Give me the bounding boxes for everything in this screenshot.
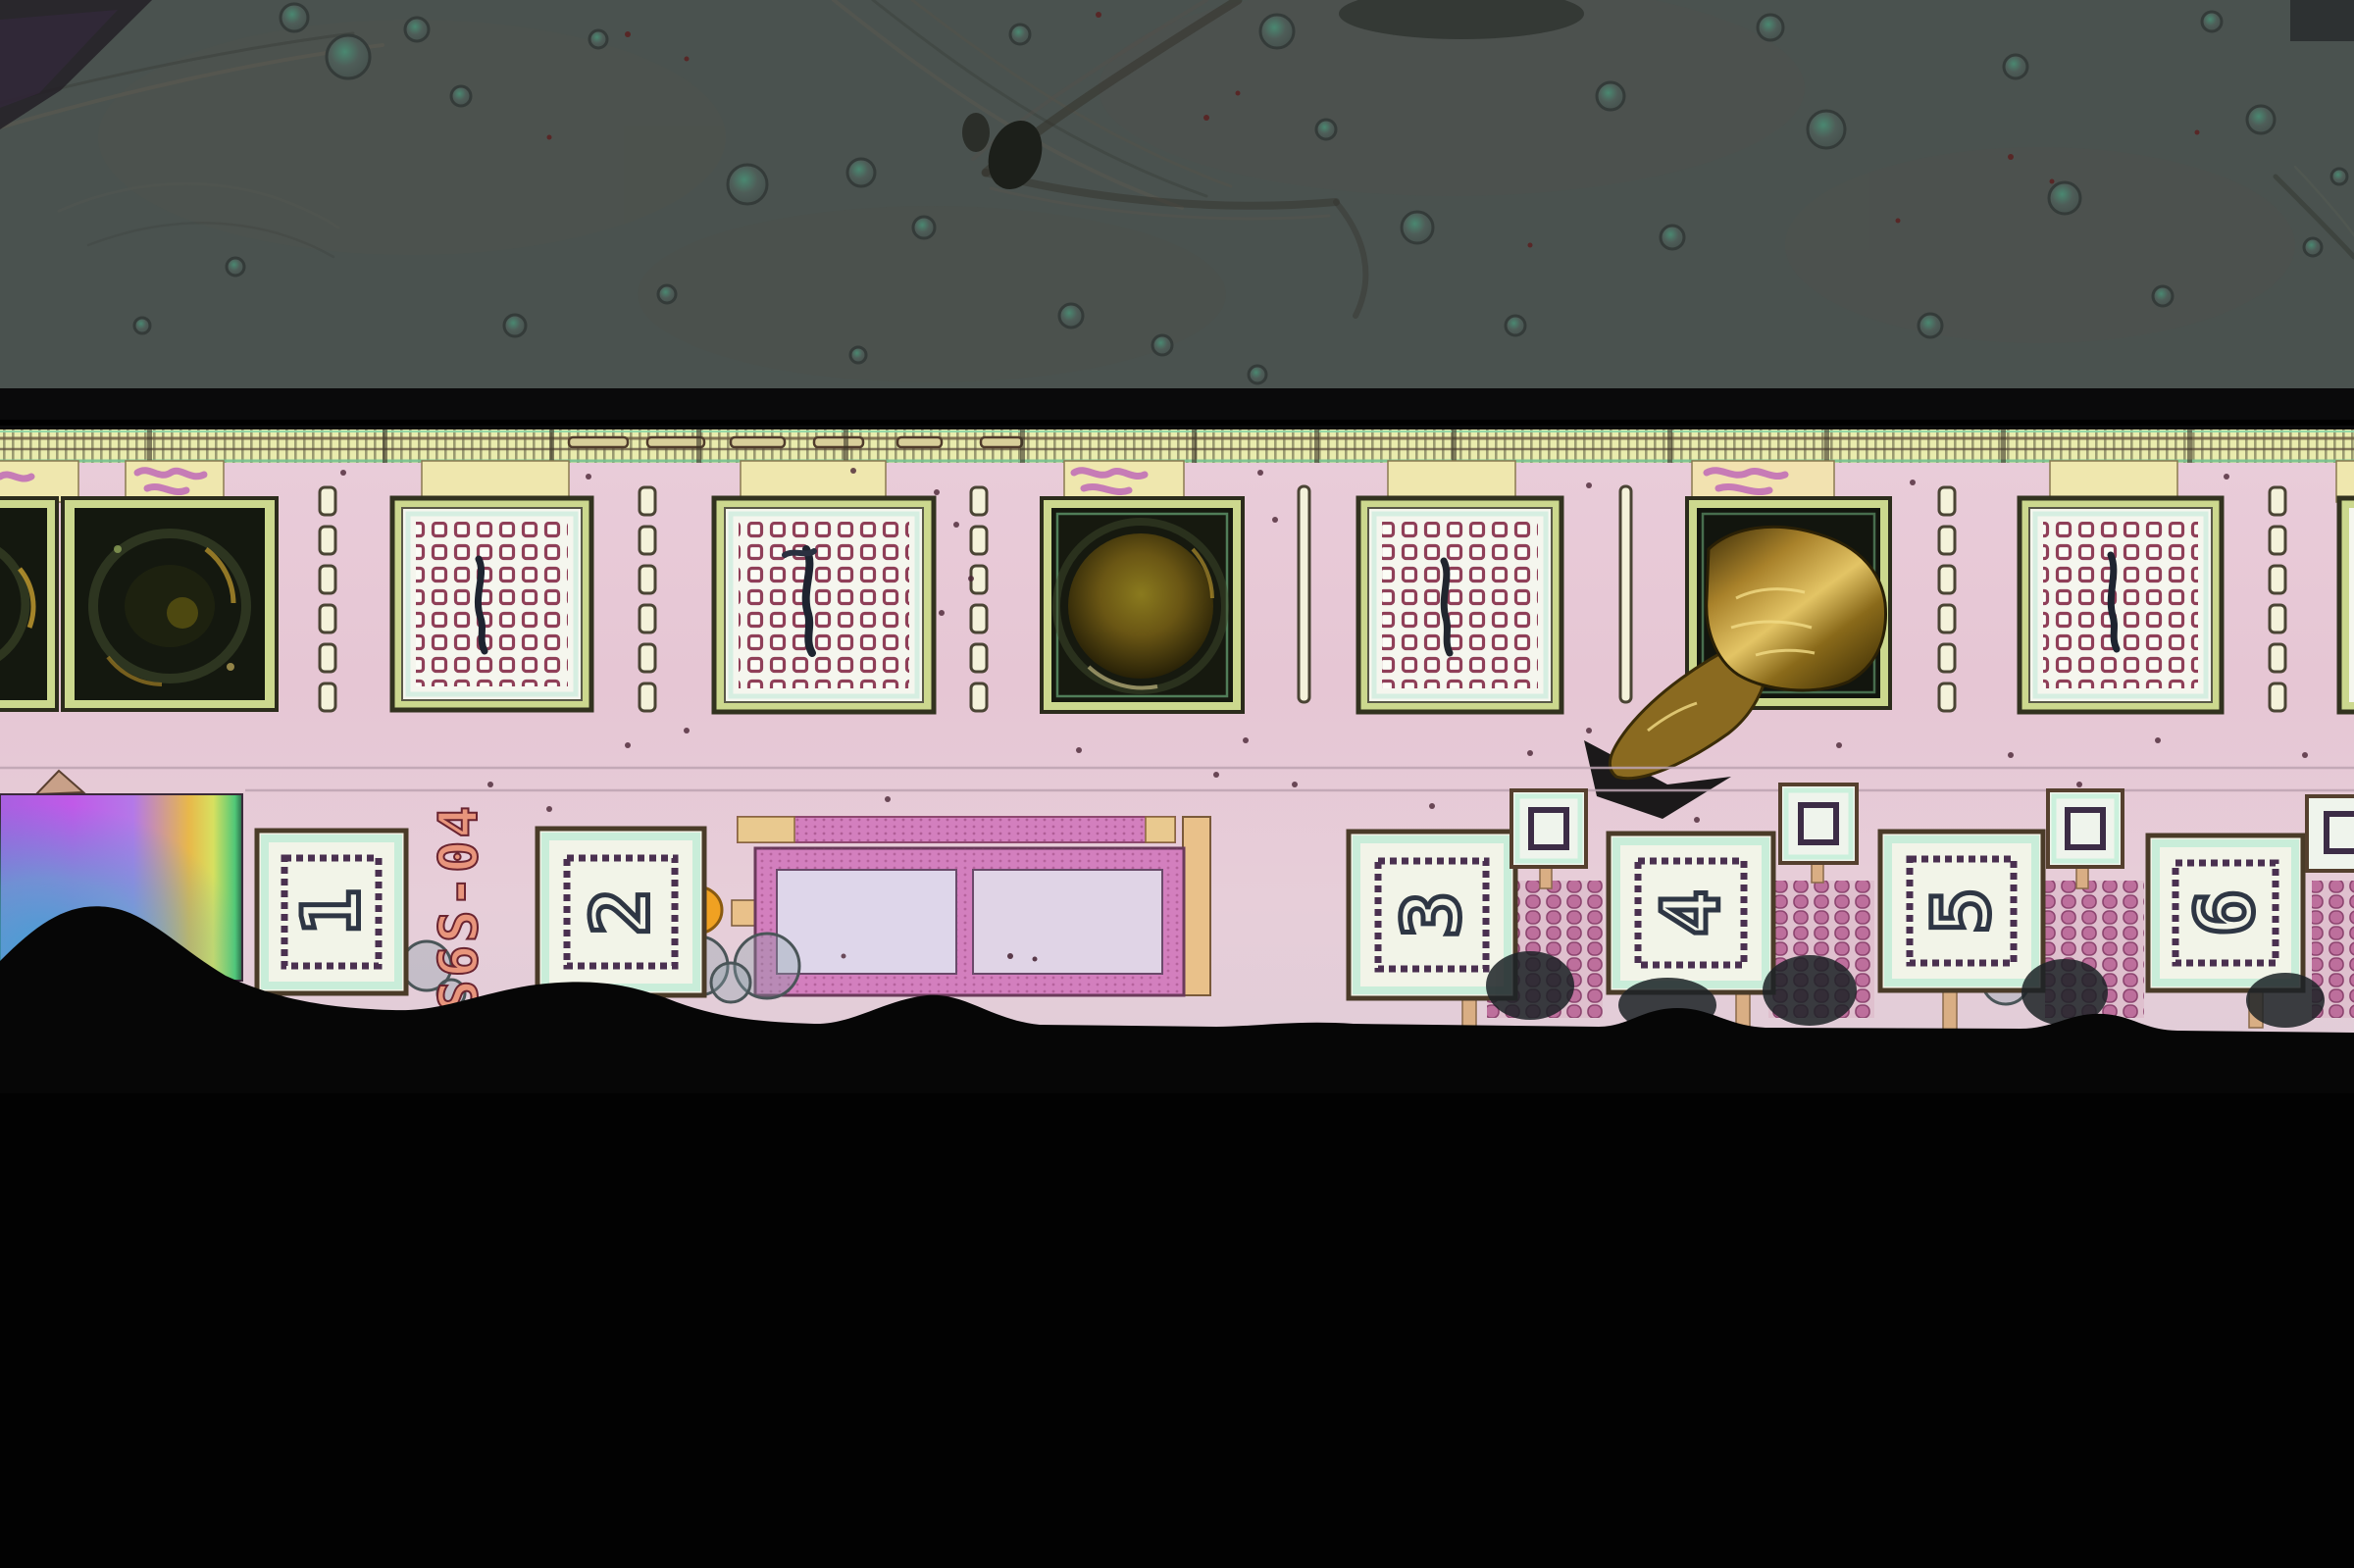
bubble (281, 4, 308, 31)
bond-pad-4-via-grid (714, 498, 934, 712)
frame-top-bar-cap-right (1146, 817, 1175, 842)
bubble (1402, 212, 1433, 243)
bubble (2153, 286, 2173, 306)
bubble (728, 165, 767, 204)
probe-pad-digit: 3 (1387, 891, 1478, 938)
bubble (913, 217, 935, 238)
probe-pad-digit: 4 (1646, 889, 1737, 936)
bubble (1597, 82, 1624, 110)
bond-pad-5-bonded-ball (1042, 498, 1243, 712)
bond-ball-residue (1068, 533, 1213, 679)
bubble (1919, 314, 1942, 337)
bubble (1661, 226, 1684, 249)
micrograph-of-ic-die: S6S-04 1 2 3 4 (0, 0, 2354, 1568)
bubble (1506, 316, 1525, 335)
seal-ring-strip (0, 430, 2354, 463)
bubble (2049, 182, 2080, 214)
bond-pad-6-via-grid (1358, 498, 1561, 712)
bubble (451, 86, 471, 106)
bubble (1152, 335, 1172, 355)
bond-pad-3-via-grid (392, 498, 591, 710)
interface-line (0, 420, 2354, 426)
bubble (227, 258, 244, 276)
bond-pad-2-bonded-dark (63, 498, 277, 710)
probe-pad-6: 6 (2148, 835, 2303, 990)
bubble (711, 963, 750, 1002)
bubble (134, 318, 150, 333)
probe-pad-4: 4 (1609, 834, 1773, 992)
marker-square-2 (1780, 784, 1857, 863)
probe-pad-5: 5 (1880, 832, 2043, 990)
bond-pad-8-via-grid (2020, 498, 2222, 712)
frame-right-rail (1183, 817, 1210, 995)
bubble (1316, 120, 1336, 139)
marker-square-3 (2048, 790, 2123, 867)
pad-tab (126, 461, 224, 502)
bond-pad-1-bonded-dark (0, 498, 57, 710)
marker-square-1 (1511, 790, 1586, 867)
probe-pad-digit: 1 (286, 888, 378, 936)
bubble (2304, 238, 2322, 256)
bubble (2202, 12, 2222, 31)
bottom-black-fill (0, 1093, 2354, 1568)
bubble (658, 285, 676, 303)
bubble (1260, 15, 1294, 48)
bubble (1808, 111, 1845, 148)
micrograph-stage: S6S-04 1 2 3 4 (0, 0, 2354, 1568)
bubble (1059, 304, 1083, 328)
bubble (327, 35, 370, 78)
encapsulant-region (0, 0, 2354, 392)
bubble (1010, 25, 1030, 44)
bubble (1758, 15, 1783, 40)
bubble (1249, 366, 1266, 383)
bubble (2331, 169, 2347, 184)
probe-pad-1: 1 (257, 831, 406, 993)
pad-tab (0, 461, 78, 502)
frame-top-bar-cap-left (738, 817, 794, 842)
probe-pad-digit: 5 (1917, 887, 2008, 935)
frame-window-left (777, 870, 956, 974)
marker-square-4-partial (2307, 796, 2354, 871)
bond-pad-9-via-grid-partial (2339, 498, 2354, 712)
probe-pad-2: 2 (537, 829, 704, 995)
bubble (2004, 55, 2027, 78)
probe-pad-digit: 6 (2180, 889, 2272, 936)
bubble (405, 18, 429, 41)
frame-window-right (973, 870, 1162, 974)
bubble (589, 30, 607, 48)
bubble (850, 347, 866, 363)
bubble (504, 315, 526, 336)
probe-pad-digit: 2 (576, 888, 667, 936)
chip-id-label: S6S-04 (428, 803, 489, 1012)
bubble (2247, 106, 2275, 133)
bubble (847, 159, 875, 186)
